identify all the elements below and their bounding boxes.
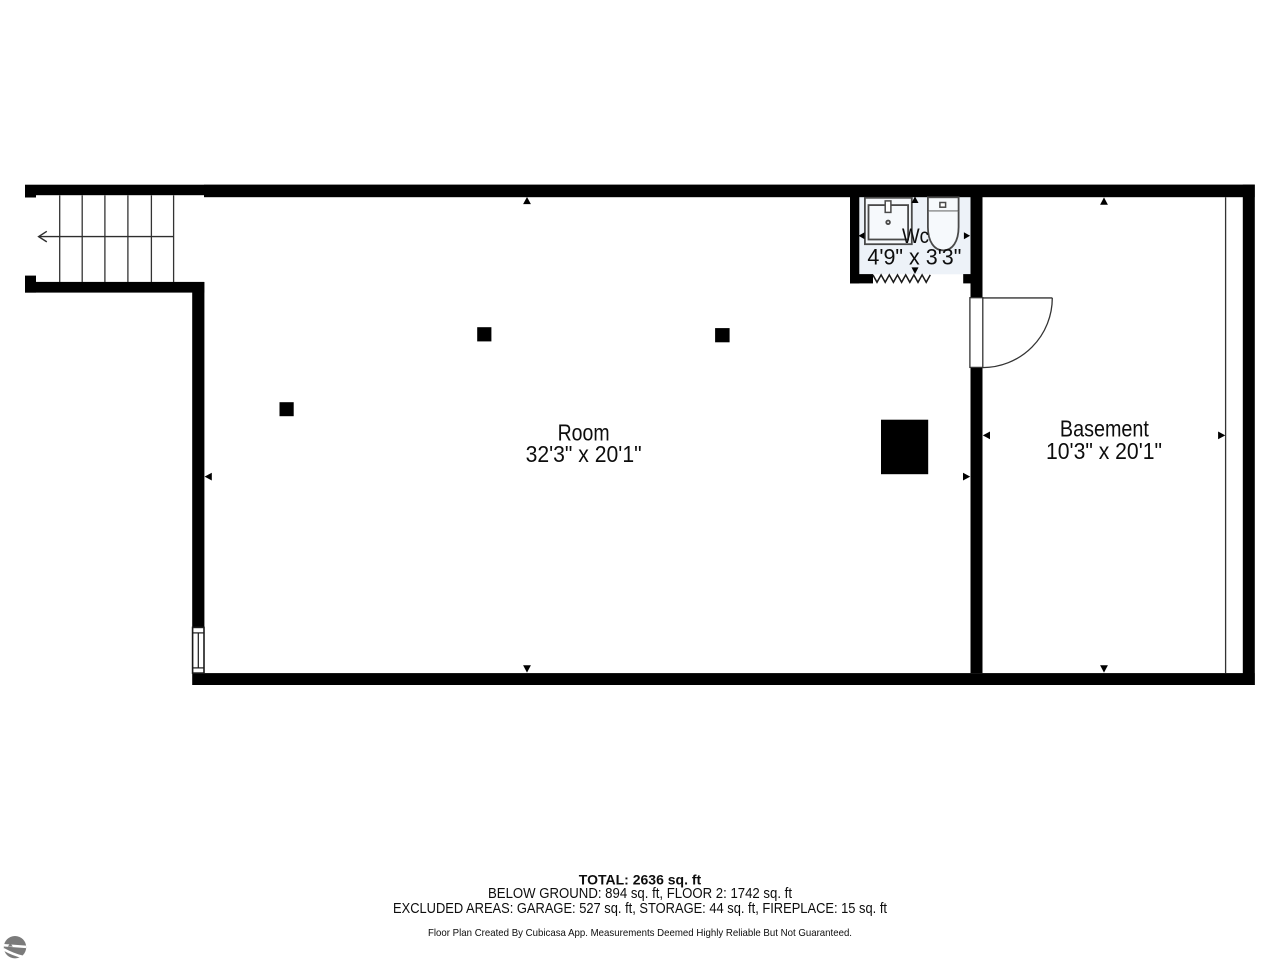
svg-text:EXCLUDED AREAS: GARAGE: 527 sq: EXCLUDED AREAS: GARAGE: 527 sq. ft, STOR… xyxy=(393,901,887,917)
svg-text:BELOW GROUND: 894 sq. ft, FLOO: BELOW GROUND: 894 sq. ft, FLOOR 2: 1742 … xyxy=(488,886,792,902)
svg-text:TOTAL: 2636 sq. ft: TOTAL: 2636 sq. ft xyxy=(579,872,702,888)
svg-text:10'3" x 20'1": 10'3" x 20'1" xyxy=(1046,438,1162,464)
svg-text:Floor Plan Created By Cubicasa: Floor Plan Created By Cubicasa App. Meas… xyxy=(428,927,852,939)
svg-text:32'3" x 20'1": 32'3" x 20'1" xyxy=(526,441,642,467)
svg-text:4'9" x 3'3": 4'9" x 3'3" xyxy=(867,245,961,270)
